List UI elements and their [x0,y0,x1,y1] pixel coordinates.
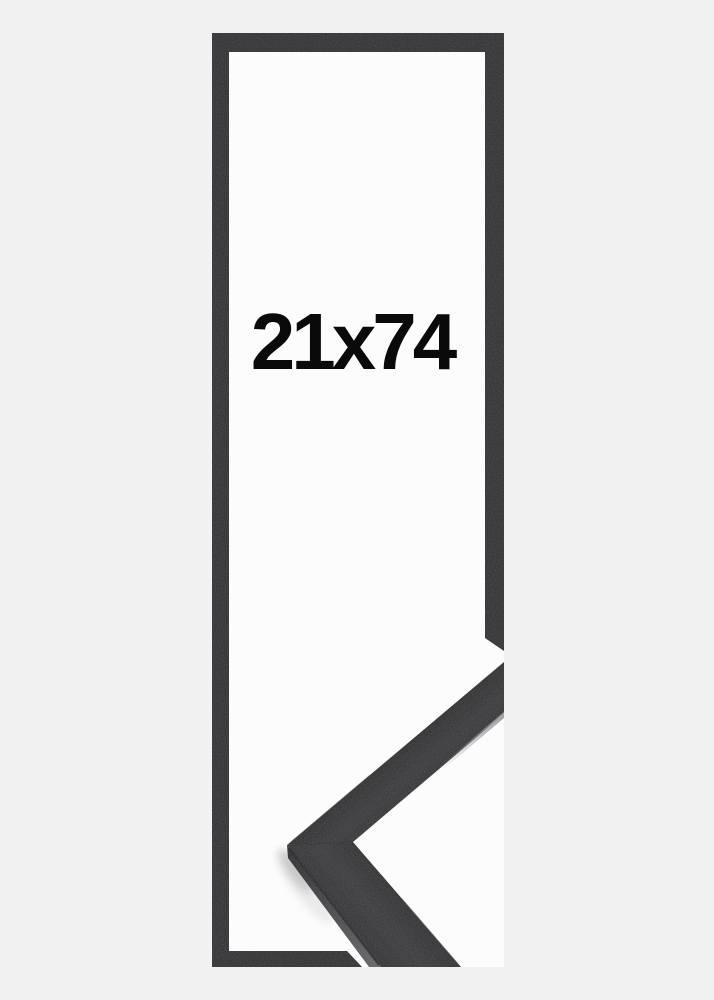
product-image: 21x74 [0,0,714,1000]
frame-size-label: 21x74 [206,294,498,390]
frame-bottom-bar [212,951,362,967]
frame-left-bar [212,33,229,967]
frame-top-bar [212,33,504,52]
frame-diagram [0,0,714,1000]
